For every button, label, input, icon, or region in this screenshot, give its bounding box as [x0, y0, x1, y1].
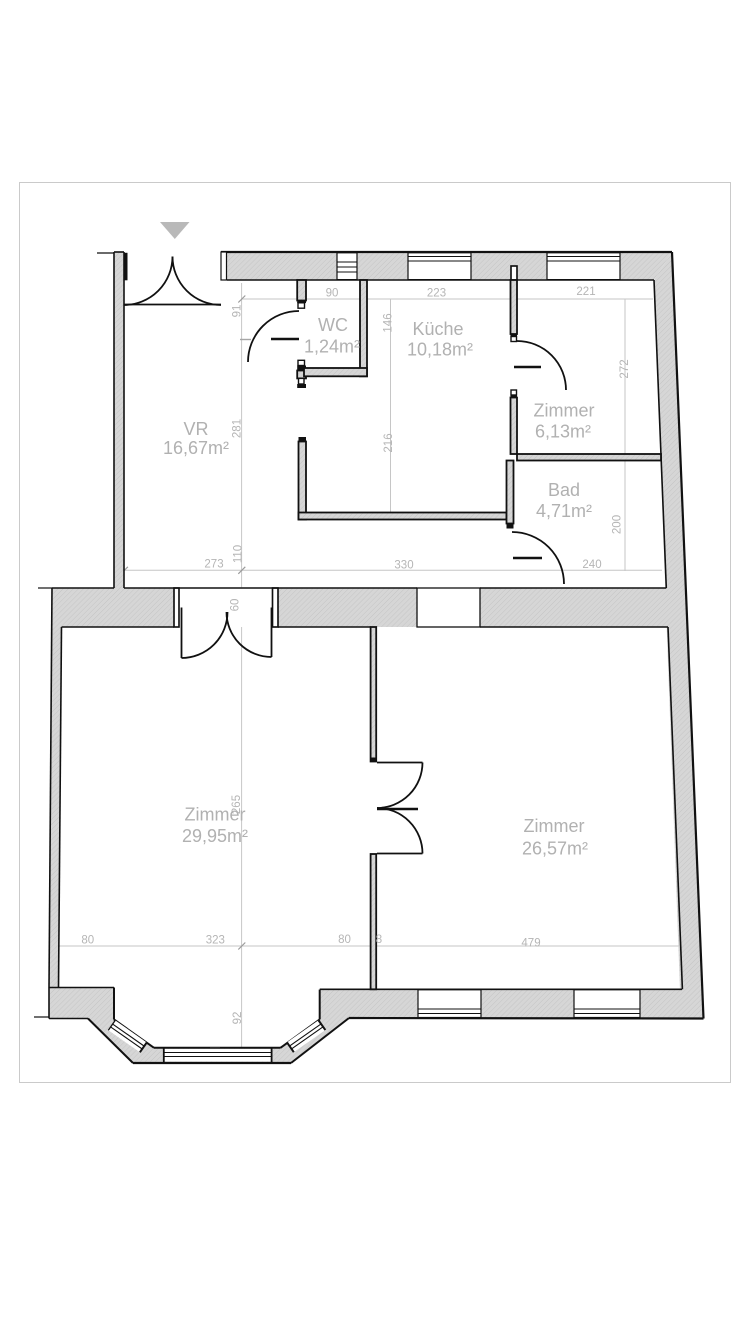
- svg-text:60: 60: [230, 599, 242, 612]
- svg-text:223: 223: [427, 288, 446, 300]
- svg-text:WC: WC: [318, 315, 348, 335]
- svg-text:80: 80: [338, 934, 351, 946]
- svg-text:90: 90: [326, 288, 339, 300]
- svg-text:8: 8: [376, 934, 382, 946]
- svg-text:80: 80: [81, 935, 94, 947]
- svg-text:200: 200: [612, 515, 624, 534]
- svg-text:6,13m²: 6,13m²: [535, 422, 591, 442]
- svg-text:16,67m²: 16,67m²: [163, 438, 229, 458]
- svg-text:1,24m²: 1,24m²: [304, 337, 360, 357]
- svg-text:272: 272: [619, 359, 631, 378]
- svg-text:29,95m²: 29,95m²: [182, 826, 248, 846]
- svg-text:273: 273: [204, 559, 223, 571]
- svg-text:VR: VR: [183, 419, 208, 439]
- svg-text:479: 479: [521, 938, 540, 950]
- svg-text:146: 146: [383, 313, 395, 332]
- svg-text:10,18m²: 10,18m²: [407, 340, 473, 360]
- svg-text:Zimmer: Zimmer: [534, 401, 595, 421]
- svg-text:330: 330: [394, 560, 413, 572]
- svg-text:323: 323: [206, 935, 225, 947]
- svg-text:26,57m²: 26,57m²: [522, 839, 588, 859]
- svg-text:240: 240: [582, 559, 601, 571]
- svg-text:221: 221: [576, 286, 595, 298]
- svg-text:92: 92: [232, 1012, 244, 1025]
- svg-text:Zimmer: Zimmer: [185, 805, 246, 825]
- svg-text:Küche: Küche: [412, 319, 463, 339]
- svg-text:4,71m²: 4,71m²: [536, 501, 592, 521]
- svg-text:Zimmer: Zimmer: [524, 816, 585, 836]
- svg-text:216: 216: [383, 433, 395, 452]
- svg-text:Bad: Bad: [548, 480, 580, 500]
- svg-text:110: 110: [232, 545, 244, 563]
- svg-text:281: 281: [231, 419, 243, 438]
- svg-text:91: 91: [231, 305, 243, 318]
